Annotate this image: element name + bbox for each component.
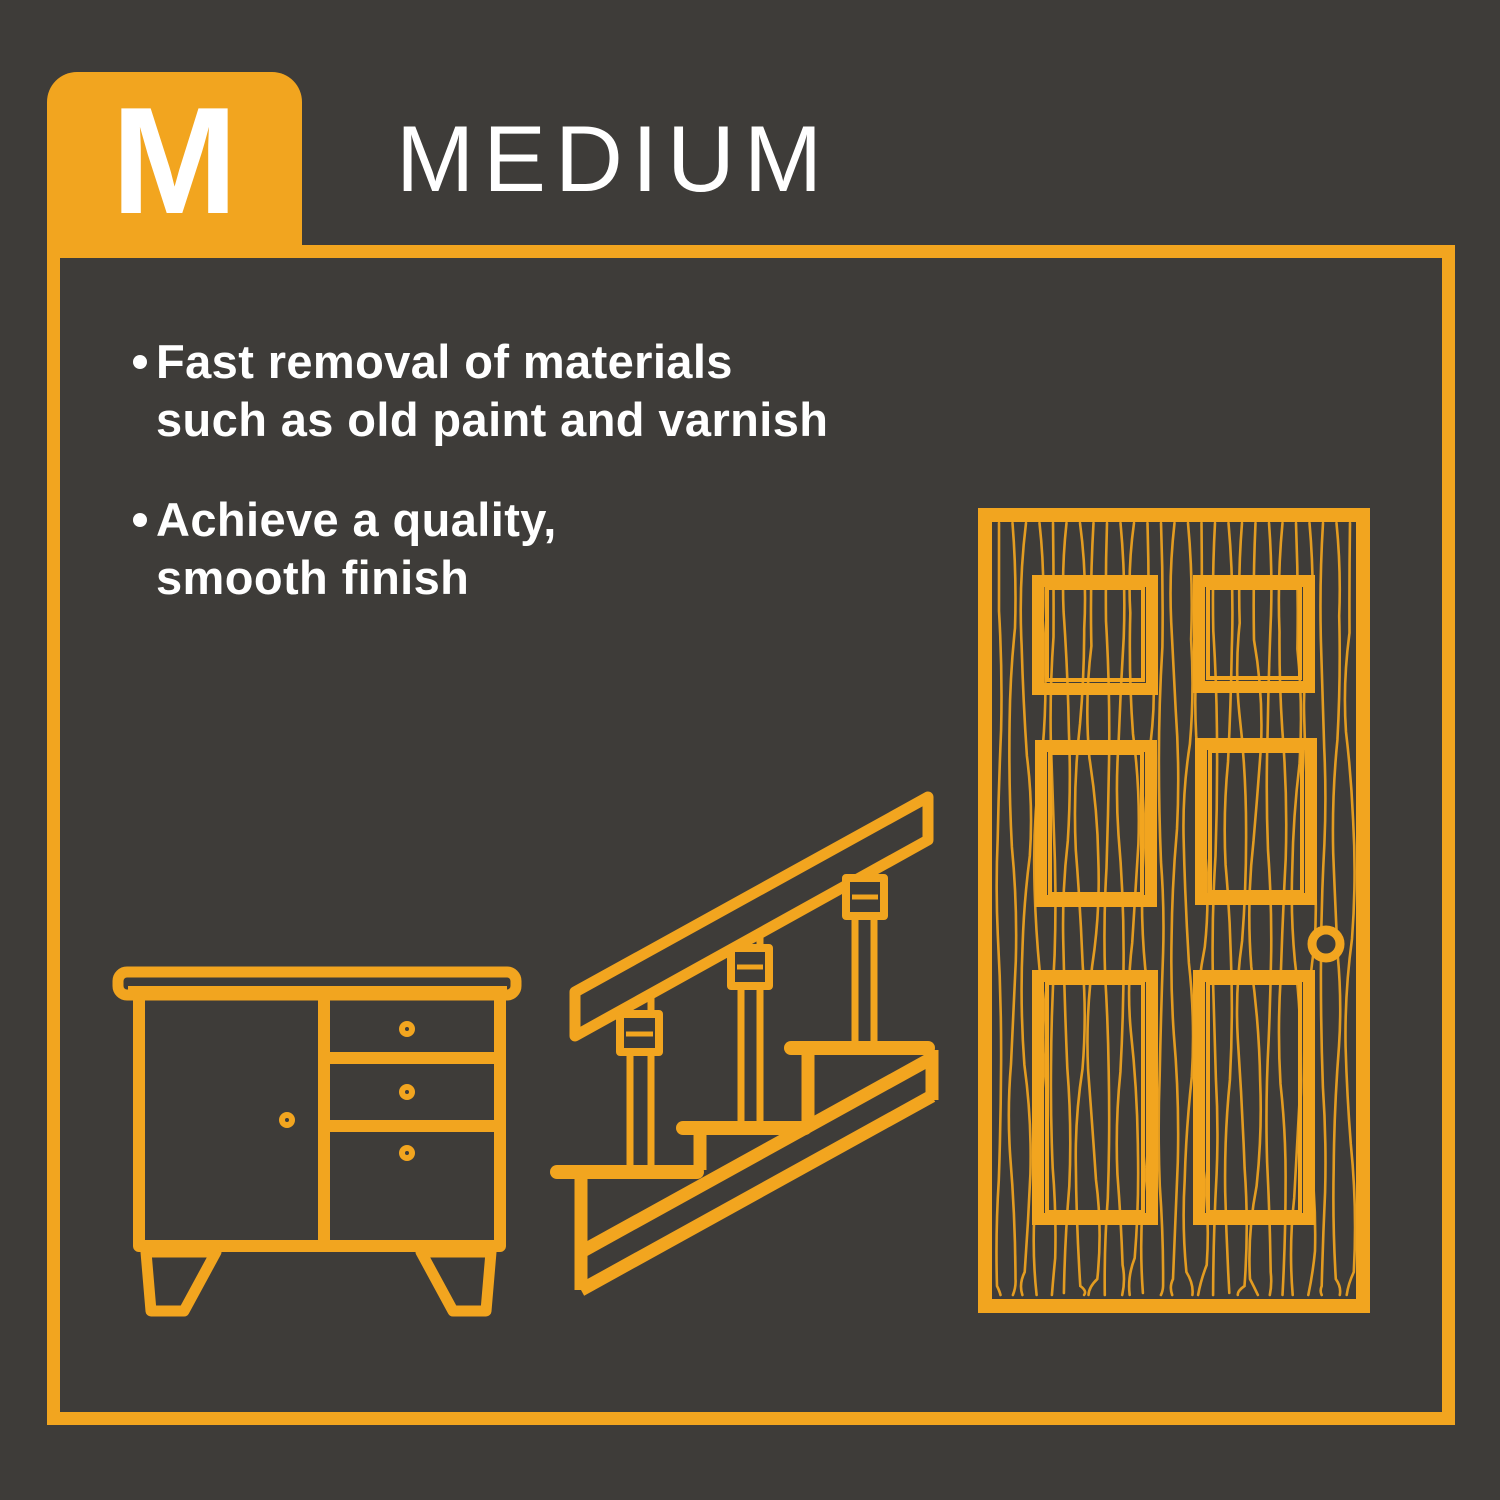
bullet-item: Fast removal of materials such as old pa… (133, 333, 1093, 449)
bullet-dot-icon (133, 355, 147, 369)
grit-badge-letter: M (111, 85, 238, 245)
bullet-dot-icon (133, 513, 147, 527)
bullet-item: Achieve a quality, smooth finish (133, 491, 1093, 607)
page-title: MEDIUM (396, 112, 831, 206)
bullet-text: Achieve a quality, smooth finish (156, 491, 557, 607)
infographic-canvas: M MEDIUM Fast removal of materials such … (0, 0, 1500, 1500)
bullet-list: Fast removal of materials such as old pa… (133, 333, 1093, 649)
grit-badge: M (47, 72, 302, 258)
bullet-text: Fast removal of materials such as old pa… (156, 333, 828, 449)
